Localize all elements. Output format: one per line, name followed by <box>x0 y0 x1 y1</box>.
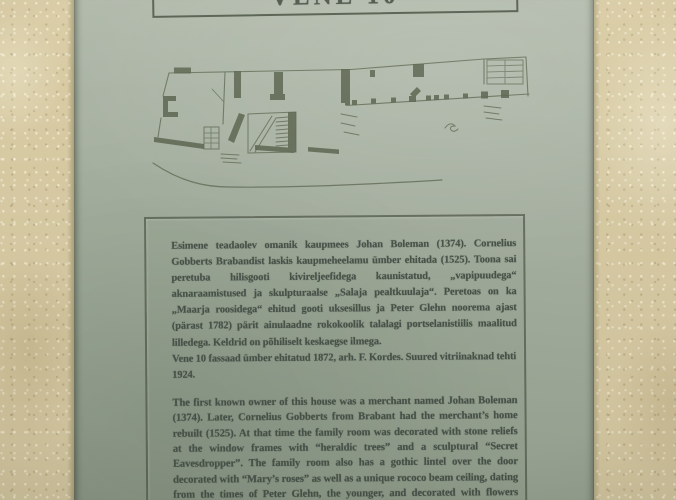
english-paragraph: The first known owner of this house was … <box>172 393 518 500</box>
estonian-footer: Vene 10 fassaad ümber ehitatud 1872, arh… <box>172 349 517 384</box>
plaque-title-box: VENE 10 <box>152 0 519 18</box>
estonian-paragraph: Esimene teadaolev omanik kaupmees Johan … <box>171 236 517 351</box>
floor-plan-drawing <box>151 56 536 191</box>
text-panel-frame: Esimene teadaolev omanik kaupmees Johan … <box>144 214 527 500</box>
plaque-content: VENE 10 <box>75 0 593 500</box>
plaque-title: VENE 10 <box>271 0 400 14</box>
text-panel: Esimene teadaolev omanik kaupmees Johan … <box>146 216 526 500</box>
plaque-photo: VENE 10 <box>0 0 676 500</box>
memorial-plaque: VENE 10 <box>74 0 594 500</box>
